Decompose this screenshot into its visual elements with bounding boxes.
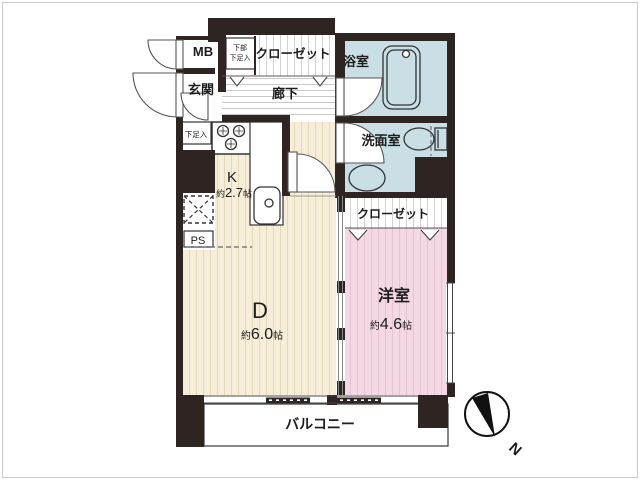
ps-shaft-icon bbox=[184, 196, 213, 223]
label-bedroom: 洋室 bbox=[378, 286, 410, 305]
compass-north-label: N bbox=[505, 439, 524, 459]
label-hall: 廊下 bbox=[272, 86, 298, 101]
label-bath: 浴室 bbox=[343, 54, 369, 69]
bath-door-leaf bbox=[336, 78, 344, 116]
floorplan-image: MB 玄関 廊下 クローゼット 下部 下足入 下足入 浴室 洗面室 K 約2.7… bbox=[0, 0, 640, 480]
sliding-panels bbox=[266, 398, 381, 404]
wash-door-leaf bbox=[336, 123, 344, 163]
label-balcony: バルコニー bbox=[285, 416, 355, 432]
mb-door-leaf bbox=[176, 40, 183, 69]
entrance-door-arc bbox=[133, 73, 177, 117]
label-genkan: 玄関 bbox=[188, 82, 214, 97]
label-mb: MB bbox=[193, 44, 213, 59]
label-upper-shoe-1: 下部 bbox=[233, 43, 247, 52]
stove-icon bbox=[212, 122, 254, 154]
label-ps: PS bbox=[191, 235, 206, 247]
floorplan-svg: MB 玄関 廊下 クローゼット 下部 下足入 下足入 浴室 洗面室 K 約2.7… bbox=[0, 0, 640, 480]
compass: N bbox=[465, 392, 525, 459]
dining-door-leaf bbox=[288, 152, 297, 192]
bathtub-icon bbox=[383, 46, 420, 109]
label-shoe: 下足入 bbox=[185, 130, 208, 139]
mb-door-arc bbox=[148, 40, 177, 69]
label-dining: D bbox=[252, 298, 268, 323]
room-bedroom-floor bbox=[345, 228, 447, 395]
vanity-icon bbox=[404, 128, 447, 150]
upper-shoe-cabinet-box bbox=[226, 38, 255, 69]
label-kitchen: K bbox=[227, 169, 237, 186]
label-upper-shoe-2: 下足入 bbox=[230, 54, 251, 62]
label-bed-closet: クローゼット bbox=[357, 206, 429, 221]
label-wash: 洗面室 bbox=[361, 133, 400, 148]
kitchen-sink-icon bbox=[250, 122, 283, 225]
label-hall-closet: クローゼット bbox=[255, 46, 330, 61]
